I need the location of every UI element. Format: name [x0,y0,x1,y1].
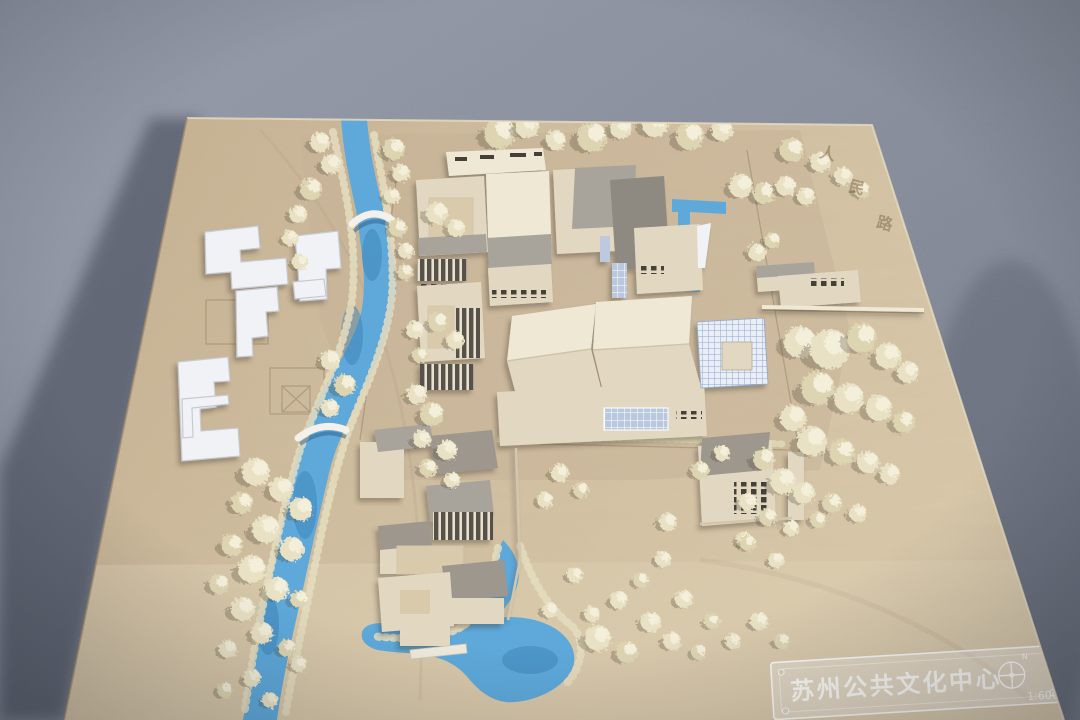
photo-architectural-model: 人 民 路 苏州公共文化中心 N 1:600 [0,0,1080,720]
model-scene: 人 民 路 苏州公共文化中心 N 1:600 [0,0,1080,720]
photo-vignette [0,0,1080,720]
